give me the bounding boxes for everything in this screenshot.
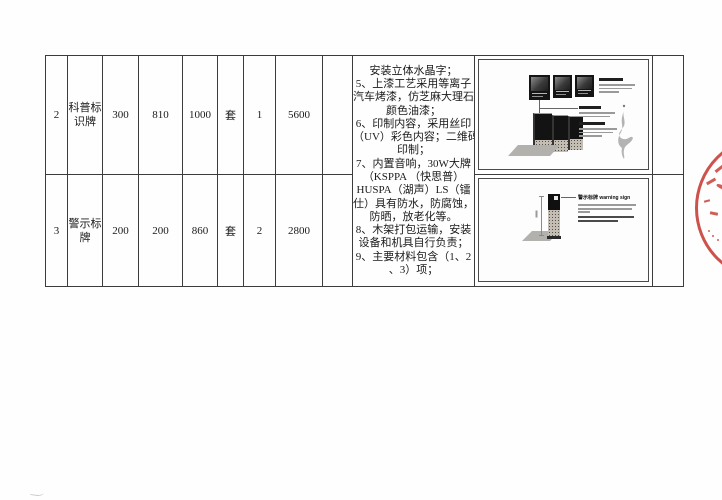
item-name-cell: 警示标牌 <box>68 175 103 287</box>
annotation-text-bar <box>579 128 617 130</box>
annotation-text-bar <box>578 204 636 206</box>
annotation-text-bar <box>579 112 615 114</box>
stamp-stroke <box>710 211 718 215</box>
item-name-cell: 科普标识牌 <box>68 56 103 175</box>
leader-line <box>539 108 578 109</box>
dimension-cell: 860 <box>183 175 218 287</box>
thumbnail-photo <box>553 75 572 98</box>
leader-line <box>539 100 540 114</box>
annotation-heading-bar <box>579 106 601 109</box>
dimension-tick <box>539 196 544 197</box>
annotation-text-bar <box>579 135 602 137</box>
blank-cell <box>653 175 684 287</box>
blank-cell <box>653 56 684 175</box>
unit-cell: 套 <box>218 175 244 287</box>
annotation-text-bar <box>579 116 610 118</box>
annotation-text-bar <box>599 84 635 86</box>
blank-cell <box>323 175 353 287</box>
dimension-cell: 810 <box>139 56 183 175</box>
annotation-heading-bar <box>599 78 623 81</box>
annotation-text-bar <box>578 208 632 210</box>
stamp-stroke <box>716 183 722 193</box>
scanned-quotation-page: { "document": { "rows": [ {"cells": ["2"… <box>0 0 722 500</box>
item-number-cell: 2 <box>46 56 68 175</box>
illustration-cell-warning-sign: 警示标牌 warning sign <box>475 175 653 287</box>
warning-sign-base <box>547 236 561 239</box>
quotation-table: 2 科普标识牌 300 810 1000 套 1 5600 安装立体水晶字； 5… <box>45 55 684 287</box>
scan-artifact <box>30 488 45 497</box>
quantity-cell: 2 <box>244 175 276 287</box>
annotation-heading-bar <box>579 122 605 125</box>
annotation-text-bar <box>599 88 632 90</box>
leader-line <box>561 197 576 198</box>
stamp-dot <box>708 230 710 232</box>
dimension-cell: 300 <box>103 56 139 175</box>
illustration-cell-science-signs <box>475 56 653 175</box>
warning-sign-head <box>548 194 560 210</box>
blank-cell <box>323 56 353 175</box>
annotation-text-bar <box>599 91 619 93</box>
unit-cell: 套 <box>218 56 244 175</box>
warning-sign-label: 警示标牌 warning sign <box>578 194 630 201</box>
annotation-text-bar <box>578 211 590 213</box>
stamp-dot <box>712 235 714 237</box>
dimension-tick <box>539 235 544 236</box>
dimension-cell: 200 <box>139 175 183 287</box>
warning-sign-body <box>548 210 560 236</box>
dimension-cell: 1000 <box>183 56 218 175</box>
notes-cell: 安装立体水晶字； 5、上漆工艺采用等离子 汽车烤漆，仿芝麻大理石 颜色油漆； 6… <box>353 56 475 287</box>
dimension-line <box>541 196 542 236</box>
annotation-text-bar <box>579 132 613 134</box>
annotation-bold-text-bar <box>578 220 618 222</box>
stamp-stroke <box>704 199 710 202</box>
price-cell: 5600 <box>276 56 323 175</box>
stamp-dot <box>717 239 719 241</box>
price-cell: 2800 <box>276 175 323 287</box>
table-row: 2 科普标识牌 300 810 1000 套 1 5600 安装立体水晶字； 5… <box>46 56 684 175</box>
item-number-cell: 3 <box>46 175 68 287</box>
stamp-stroke <box>715 162 722 173</box>
dimension-label-bar <box>536 211 538 218</box>
gray-map-shape <box>615 104 635 160</box>
dimension-cell: 200 <box>103 175 139 287</box>
quantity-cell: 1 <box>244 56 276 175</box>
red-stamp <box>695 135 722 281</box>
stamp-stroke <box>706 178 716 185</box>
thumbnail-photo <box>575 75 594 97</box>
thumbnail-photo <box>529 75 550 100</box>
annotation-bold-text-bar <box>578 216 634 218</box>
